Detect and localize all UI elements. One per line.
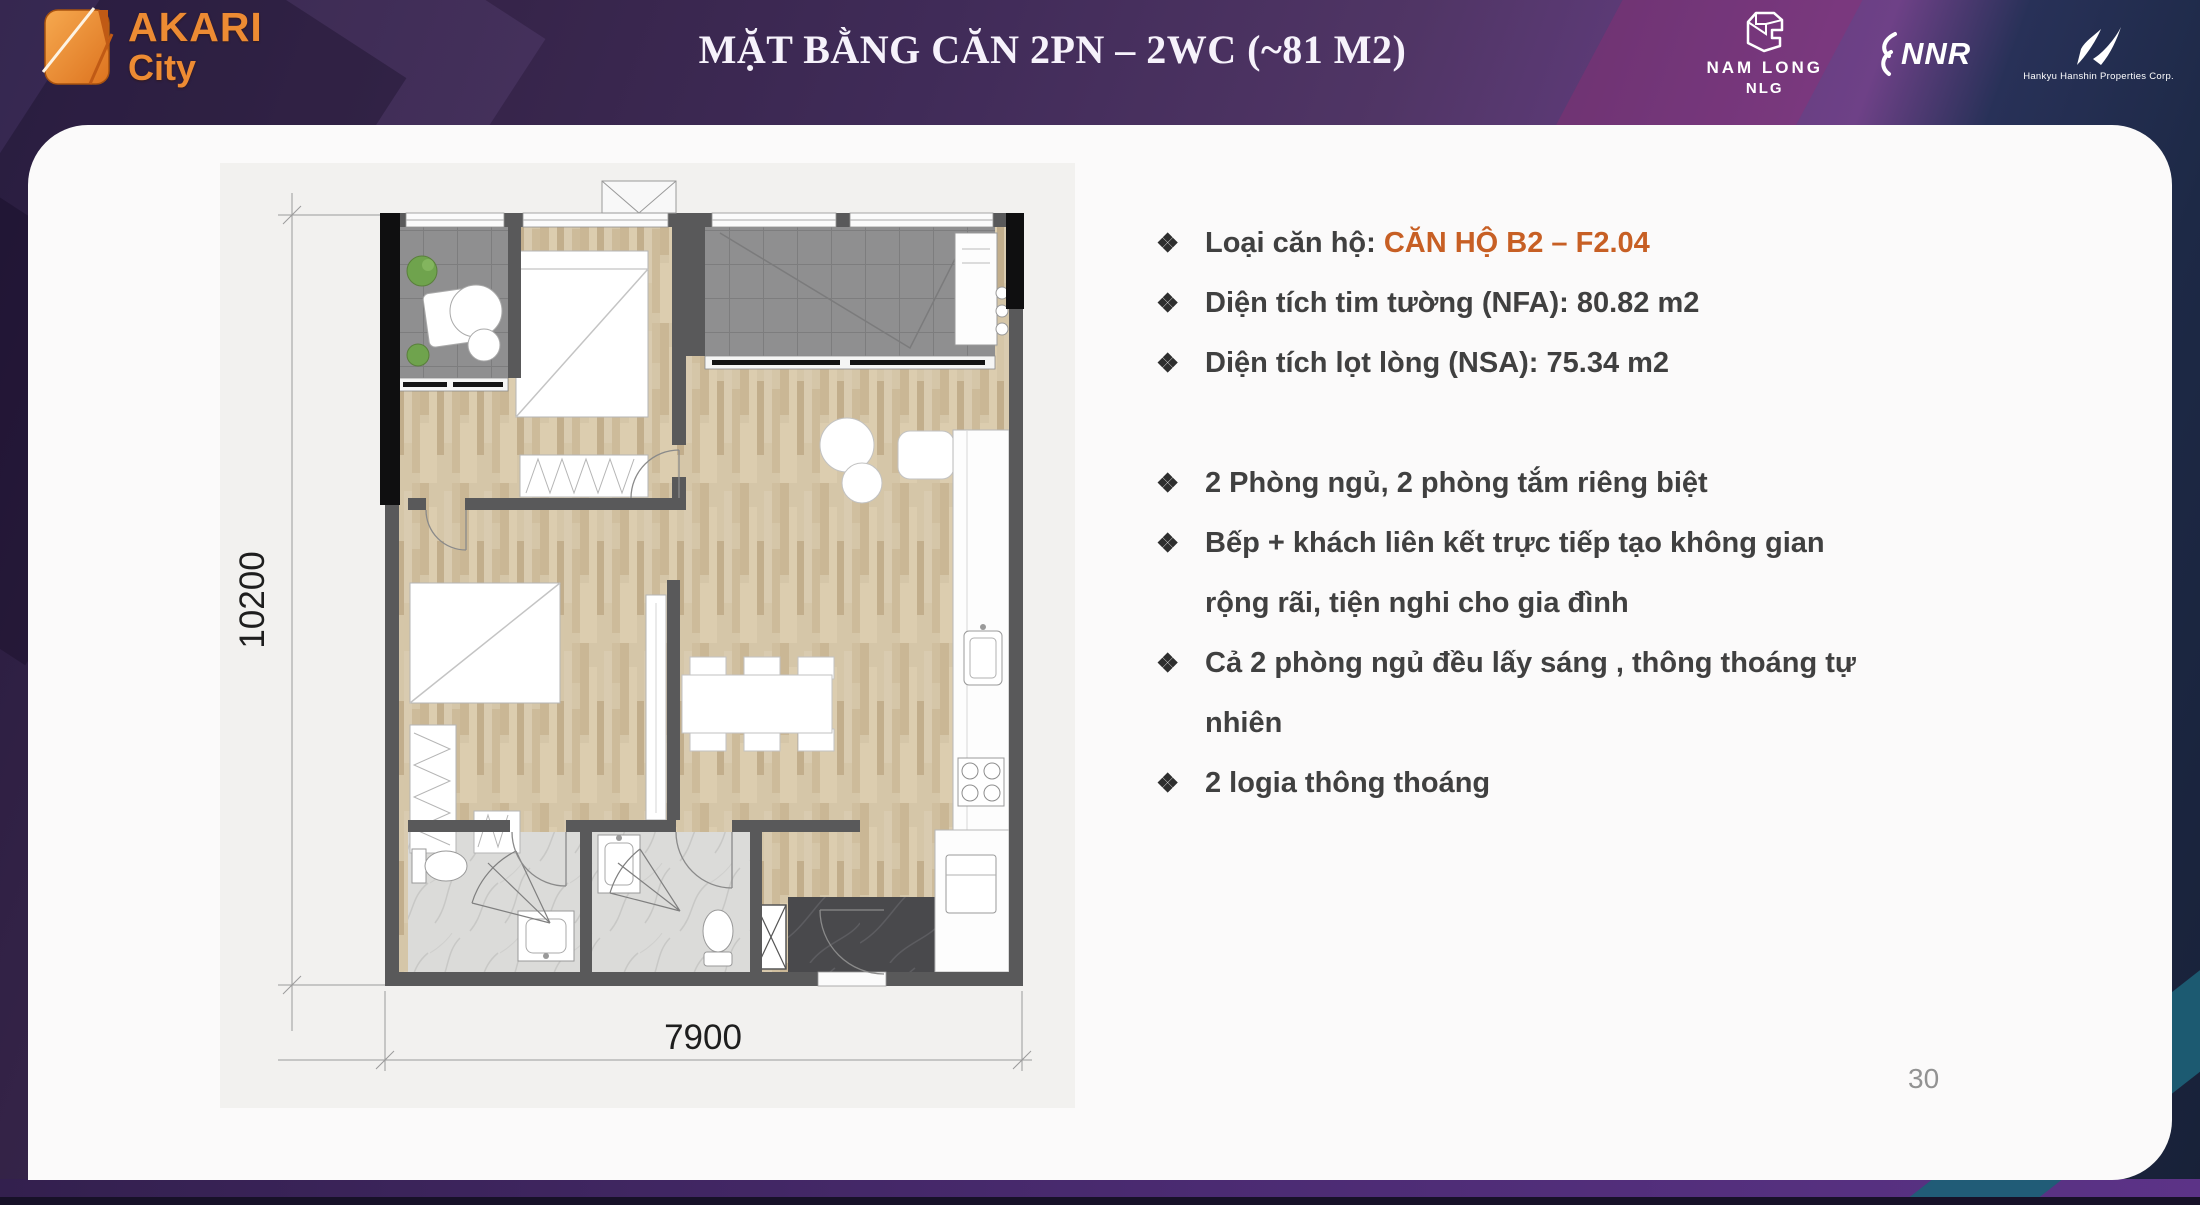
entry-floor <box>788 897 935 972</box>
loggia-2-floor <box>705 226 995 356</box>
list-item: ❖ 2 Phòng ngủ, 2 phòng tắm riêng biệt <box>1156 453 1861 513</box>
list-item: ❖ Diện tích lọt lòng (NSA): 75.34 m2 <box>1156 333 1861 393</box>
nnr-arcs-icon <box>1875 30 1899 78</box>
bullet-icon: ❖ <box>1156 213 1179 273</box>
nam-long-code: NLG <box>1746 80 1784 97</box>
nnr-logo: NNR <box>1875 30 1971 78</box>
background-bottom-edge <box>0 1197 2200 1205</box>
nam-long-name: NAM LONG <box>1706 58 1823 78</box>
detail-text: Diện tích tim tường (NFA): 80.82 m2 <box>1205 287 1699 319</box>
bullet-icon: ❖ <box>1156 453 1179 513</box>
dining-table <box>682 657 834 751</box>
bullet-icon: ❖ <box>1156 753 1179 813</box>
hankyu-h-icon <box>2071 25 2127 67</box>
plan-dim-width: 7900 <box>664 1018 742 1057</box>
detail-text: Diện tích lọt lòng (NSA): 75.34 m2 <box>1205 347 1669 379</box>
bullet-icon: ❖ <box>1156 273 1179 333</box>
bedroom-1-furniture <box>516 251 648 497</box>
slide: AKARI City MẶT BẰNG CĂN 2PN – 2WC (~81 M… <box>0 0 2200 1205</box>
floor-plan-panel: 10200 7900 <box>220 163 1075 1108</box>
list-item: ❖ Bếp + khách liên kết trực tiếp tạo khô… <box>1156 513 1861 633</box>
detail-label: Loại căn hộ: <box>1205 227 1384 259</box>
list-item: ❖ Loại căn hộ: CĂN HỘ B2 – F2.04 <box>1156 213 1861 273</box>
list-item: ❖ Cả 2 phòng ngủ đều lấy sáng , thông th… <box>1156 633 1861 753</box>
apartment-details-list: ❖ Loại căn hộ: CĂN HỘ B2 – F2.04 ❖ Diện … <box>1156 213 1861 813</box>
detail-text: Cả 2 phòng ngủ đều lấy sáng , thông thoá… <box>1205 647 1856 739</box>
plan-dim-height: 10200 <box>233 551 272 648</box>
nam-long-logo: NAM LONG NLG <box>1706 10 1823 97</box>
bullet-icon: ❖ <box>1156 633 1179 693</box>
hankyu-hanshin-logo: Hankyu Hanshin Properties Corp. <box>2023 25 2174 82</box>
detail-text: 2 Phòng ngủ, 2 phòng tắm riêng biệt <box>1205 467 1708 499</box>
content-panel: 10200 7900 <box>28 125 2172 1180</box>
list-item: ❖ Diện tích tim tường (NFA): 80.82 m2 <box>1156 273 1861 333</box>
list-item: ❖ 2 logia thông thoáng <box>1156 753 1861 813</box>
floor-plan-svg: 10200 7900 <box>220 163 1075 1108</box>
bullet-icon: ❖ <box>1156 513 1179 573</box>
ac-unit <box>602 181 676 213</box>
nnr-name: NNR <box>1901 36 1971 72</box>
partner-logos: NAM LONG NLG NNR Hankyu Hanshin Properti… <box>1706 10 2174 97</box>
page-number: 30 <box>1908 1063 1939 1095</box>
detail-text: 2 logia thông thoáng <box>1205 767 1490 799</box>
nam-long-cube-icon <box>1742 10 1788 54</box>
detail-text: Bếp + khách liên kết trực tiếp tạo không… <box>1205 527 1825 619</box>
bullet-icon: ❖ <box>1156 333 1179 393</box>
hankyu-name: Hankyu Hanshin Properties Corp. <box>2023 71 2174 82</box>
unit-code: CĂN HỘ B2 – F2.04 <box>1384 227 1650 259</box>
